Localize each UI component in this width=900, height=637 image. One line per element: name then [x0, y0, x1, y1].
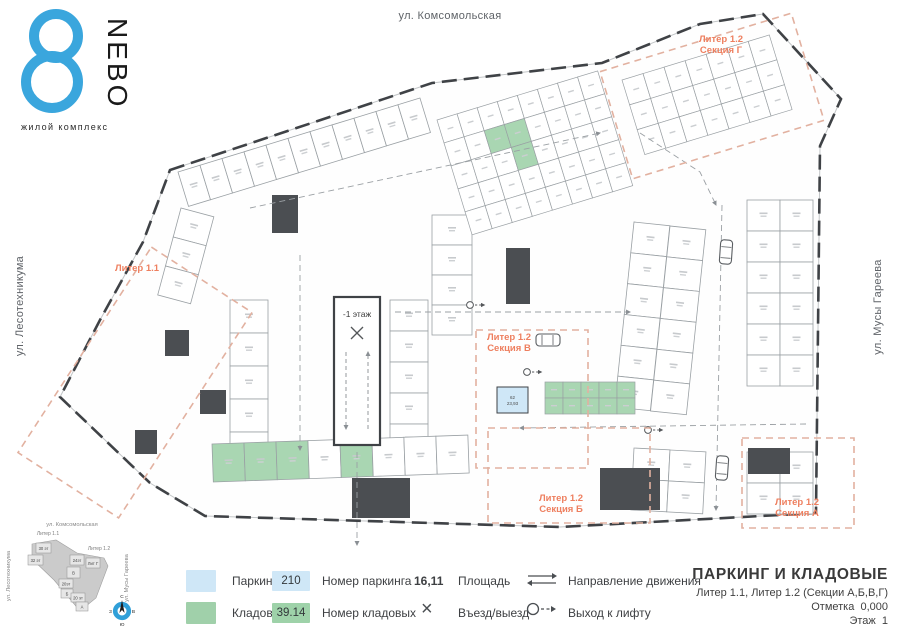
mini-map: ул. Комсомольскаяул. Лесотехникумаул. Му… [0, 514, 154, 637]
core-wall [352, 478, 410, 518]
spot-area: 23,93 [507, 401, 519, 406]
parking-number-label: Номер паркинга [322, 574, 411, 588]
section-label: Литер 1.2Секция Б [539, 493, 583, 515]
core-wall [200, 390, 226, 414]
svg-text:20эт: 20эт [62, 581, 71, 586]
parking-row [390, 300, 428, 455]
lift-exit-icon [525, 601, 559, 617]
core-wall [600, 468, 660, 510]
street-label-right: ул. Мусы Гареева [872, 232, 884, 382]
section-label: Литер 1.1 [115, 263, 160, 274]
parking-row [780, 200, 813, 386]
car-icon [715, 456, 729, 481]
drawing-subtitle: Литер 1.1, Литер 1.2 (Секции А,Б,В,Г) [640, 587, 888, 599]
brand-logo: NEBO [10, 4, 135, 122]
section-label: Литер 1.2Секция Г [699, 34, 743, 56]
svg-text:30 эт: 30 эт [39, 546, 49, 551]
svg-text:20 эт: 20 эт [73, 595, 83, 600]
logo-eight-bottom-icon [26, 56, 78, 108]
title-block: ПАРКИНГ И КЛАДОВЫЕ Литер 1.1, Литер 1.2 … [640, 566, 888, 627]
svg-text:24эт: 24эт [73, 558, 82, 563]
entry-exit-label: Въезд/выезд [458, 606, 529, 620]
parking-row [230, 300, 268, 465]
svg-text:Б: Б [66, 591, 69, 596]
core-wall [506, 248, 530, 304]
parking-number-badge: 210 [272, 571, 310, 591]
storage-number-badge: 39.14 [272, 603, 310, 623]
compass-icon: СВЗЮ [109, 594, 135, 628]
car-icon [536, 334, 560, 346]
storage-swatch [186, 602, 216, 624]
svg-text:32 эт: 32 эт [31, 558, 41, 563]
logo-brand-text: NEBO [102, 18, 133, 109]
car-icon [719, 240, 733, 265]
drawing-title: ПАРКИНГ И КЛАДОВЫЕ [640, 566, 888, 584]
logo-tagline: жилой комплекс [21, 122, 108, 132]
svg-text:С: С [120, 594, 124, 600]
street-label-left: ул. Лесотехникума [14, 231, 26, 381]
floor-number: Этаж 1 [640, 615, 888, 627]
core-wall [165, 330, 189, 356]
svg-text:Лит Г: Лит Г [88, 561, 99, 566]
section-label: Литер 1.2Секция В [487, 332, 531, 354]
minimap-liter-label: Литер 1.2 [88, 546, 110, 552]
svg-text:Ю: Ю [120, 622, 125, 628]
svg-text:В: В [72, 570, 75, 575]
spot-number: 62 [510, 395, 516, 400]
svg-text:В: В [132, 609, 135, 615]
minimap-street-right: ул. Мусы Гареева [124, 553, 130, 602]
parking-plan-page: { "logo": {"brand":"NEBO","tagline":"жил… [0, 0, 900, 637]
svg-text:З: З [109, 609, 112, 615]
direction-arrows-icon [525, 570, 559, 588]
area-label: Площадь [458, 574, 510, 588]
elevation-mark: Отметка 0,000 [640, 601, 888, 613]
floor-plan-canvas: -1 этаж6223,93Литер 1.1Литер 1.2Секция Г… [0, 0, 900, 560]
selected-parking-spot[interactable]: 6223,93 [497, 387, 528, 413]
ramp-to-minus-one: -1 этаж [334, 297, 380, 445]
parking-swatch [186, 570, 216, 592]
storage-grid [545, 382, 635, 414]
minimap-street-top: ул. Комсомольская [46, 522, 98, 528]
parking-legend-label: Паркинг [232, 574, 277, 588]
street-label-top: ул. Комсомольская [330, 10, 570, 22]
minimap-street-left: ул. Лесотехникума [6, 550, 12, 601]
ramp-label: -1 этаж [343, 309, 372, 319]
lift-exit-label: Выход к лифту [568, 606, 651, 620]
entry-exit-icon: × [421, 598, 433, 621]
area-value: 16,11 [414, 574, 443, 588]
section-label: Литер 1.2Секция А [775, 497, 819, 519]
minimap-liter-label: Литер 1.1 [37, 531, 59, 537]
parking-row [432, 215, 472, 335]
core-wall [748, 448, 790, 474]
storage-number-label: Номер кладовых [322, 606, 416, 620]
svg-text:А: А [81, 604, 84, 609]
parking-row [667, 450, 706, 514]
core-wall [135, 430, 157, 454]
parking-row [747, 200, 780, 386]
